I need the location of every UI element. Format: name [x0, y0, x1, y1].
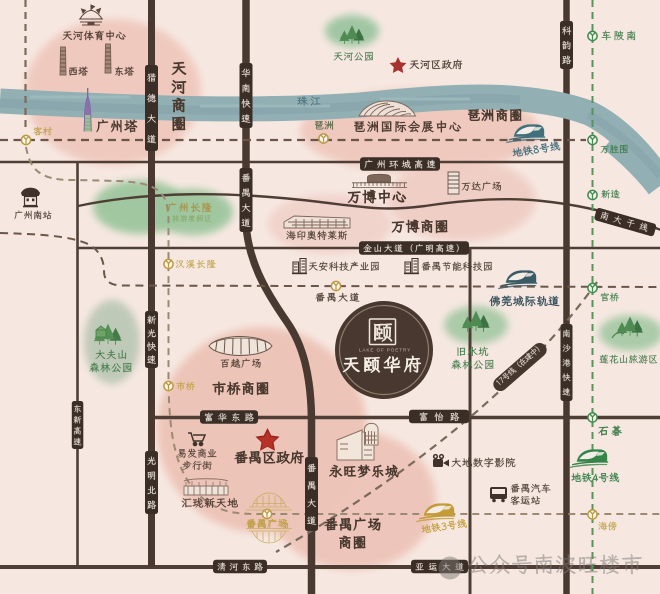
svg-text:LAKE OF POETRY: LAKE OF POETRY	[359, 348, 411, 353]
